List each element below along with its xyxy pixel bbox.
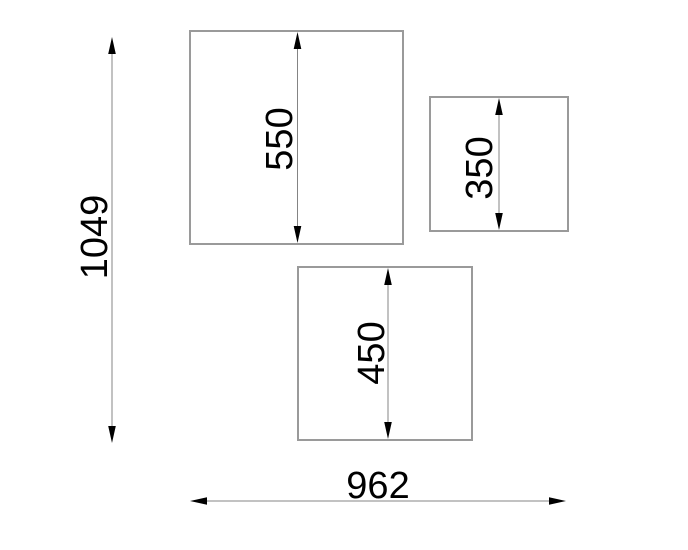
- dimension-overall-height: 1049: [74, 37, 116, 443]
- dimension-label: 350: [459, 136, 501, 199]
- drawing-canvas: 550 350 450 1049 962: [0, 0, 688, 550]
- dimension-label: 1049: [74, 195, 116, 280]
- arrow-right-icon: [549, 497, 566, 505]
- dimension-label: 962: [346, 465, 409, 507]
- technical-drawing: 550 350 450 1049 962: [0, 0, 688, 550]
- arrow-left-icon: [190, 497, 207, 505]
- arrow-up-icon: [108, 37, 116, 54]
- dimension-overall-width: 962: [190, 465, 566, 507]
- dimension-label: 550: [259, 107, 301, 170]
- arrow-down-icon: [108, 426, 116, 443]
- dimension-label: 450: [351, 321, 393, 384]
